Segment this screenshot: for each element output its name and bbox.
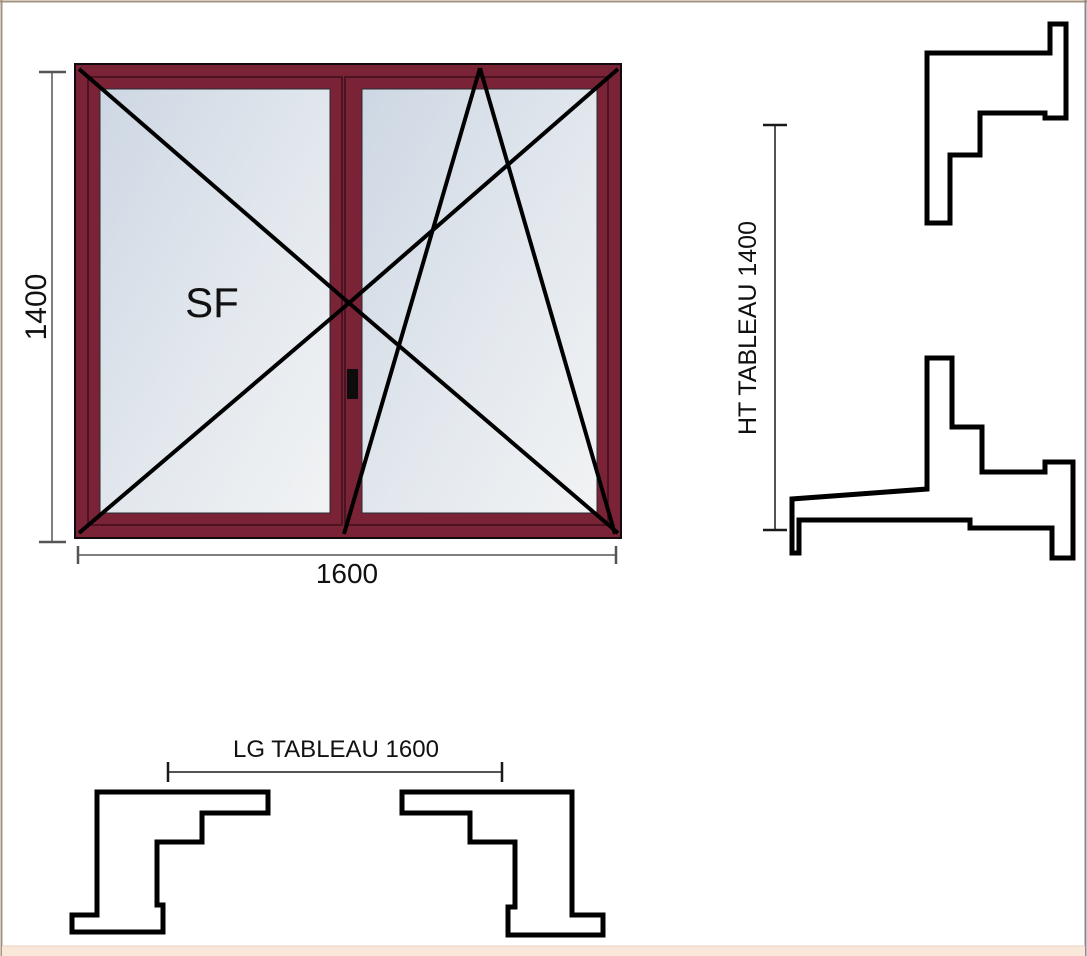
section-height-label: HT TABLEAU 1400 [734, 221, 762, 435]
section-width-label: LG TABLEAU 1600 [233, 736, 439, 763]
sash-type-label: SF [185, 279, 239, 326]
height-dimension: 1400 [20, 72, 66, 542]
width-dimension-label: 1600 [316, 558, 378, 589]
window-technical-drawing: SF 1400 1600 HT TABLEAU 1400 [0, 0, 1087, 956]
bottom-strip [2, 946, 1085, 956]
window-handle[interactable] [347, 369, 358, 399]
window-elevation: SF [75, 64, 621, 538]
right-sash-glass[interactable] [362, 89, 597, 513]
width-dimension: 1600 [78, 546, 616, 589]
right-jamb-section-profile [402, 792, 603, 935]
horizontal-section: LG TABLEAU 1600 [72, 736, 603, 935]
sill-section-profile [792, 358, 1073, 558]
height-dimension-label: 1400 [20, 274, 53, 341]
left-jamb-section-profile [72, 792, 268, 932]
head-section-profile [927, 24, 1066, 223]
section-width-dimension: LG TABLEAU 1600 [168, 736, 502, 782]
section-height-dimension: HT TABLEAU 1400 [734, 125, 787, 530]
vertical-section: HT TABLEAU 1400 [734, 24, 1073, 558]
